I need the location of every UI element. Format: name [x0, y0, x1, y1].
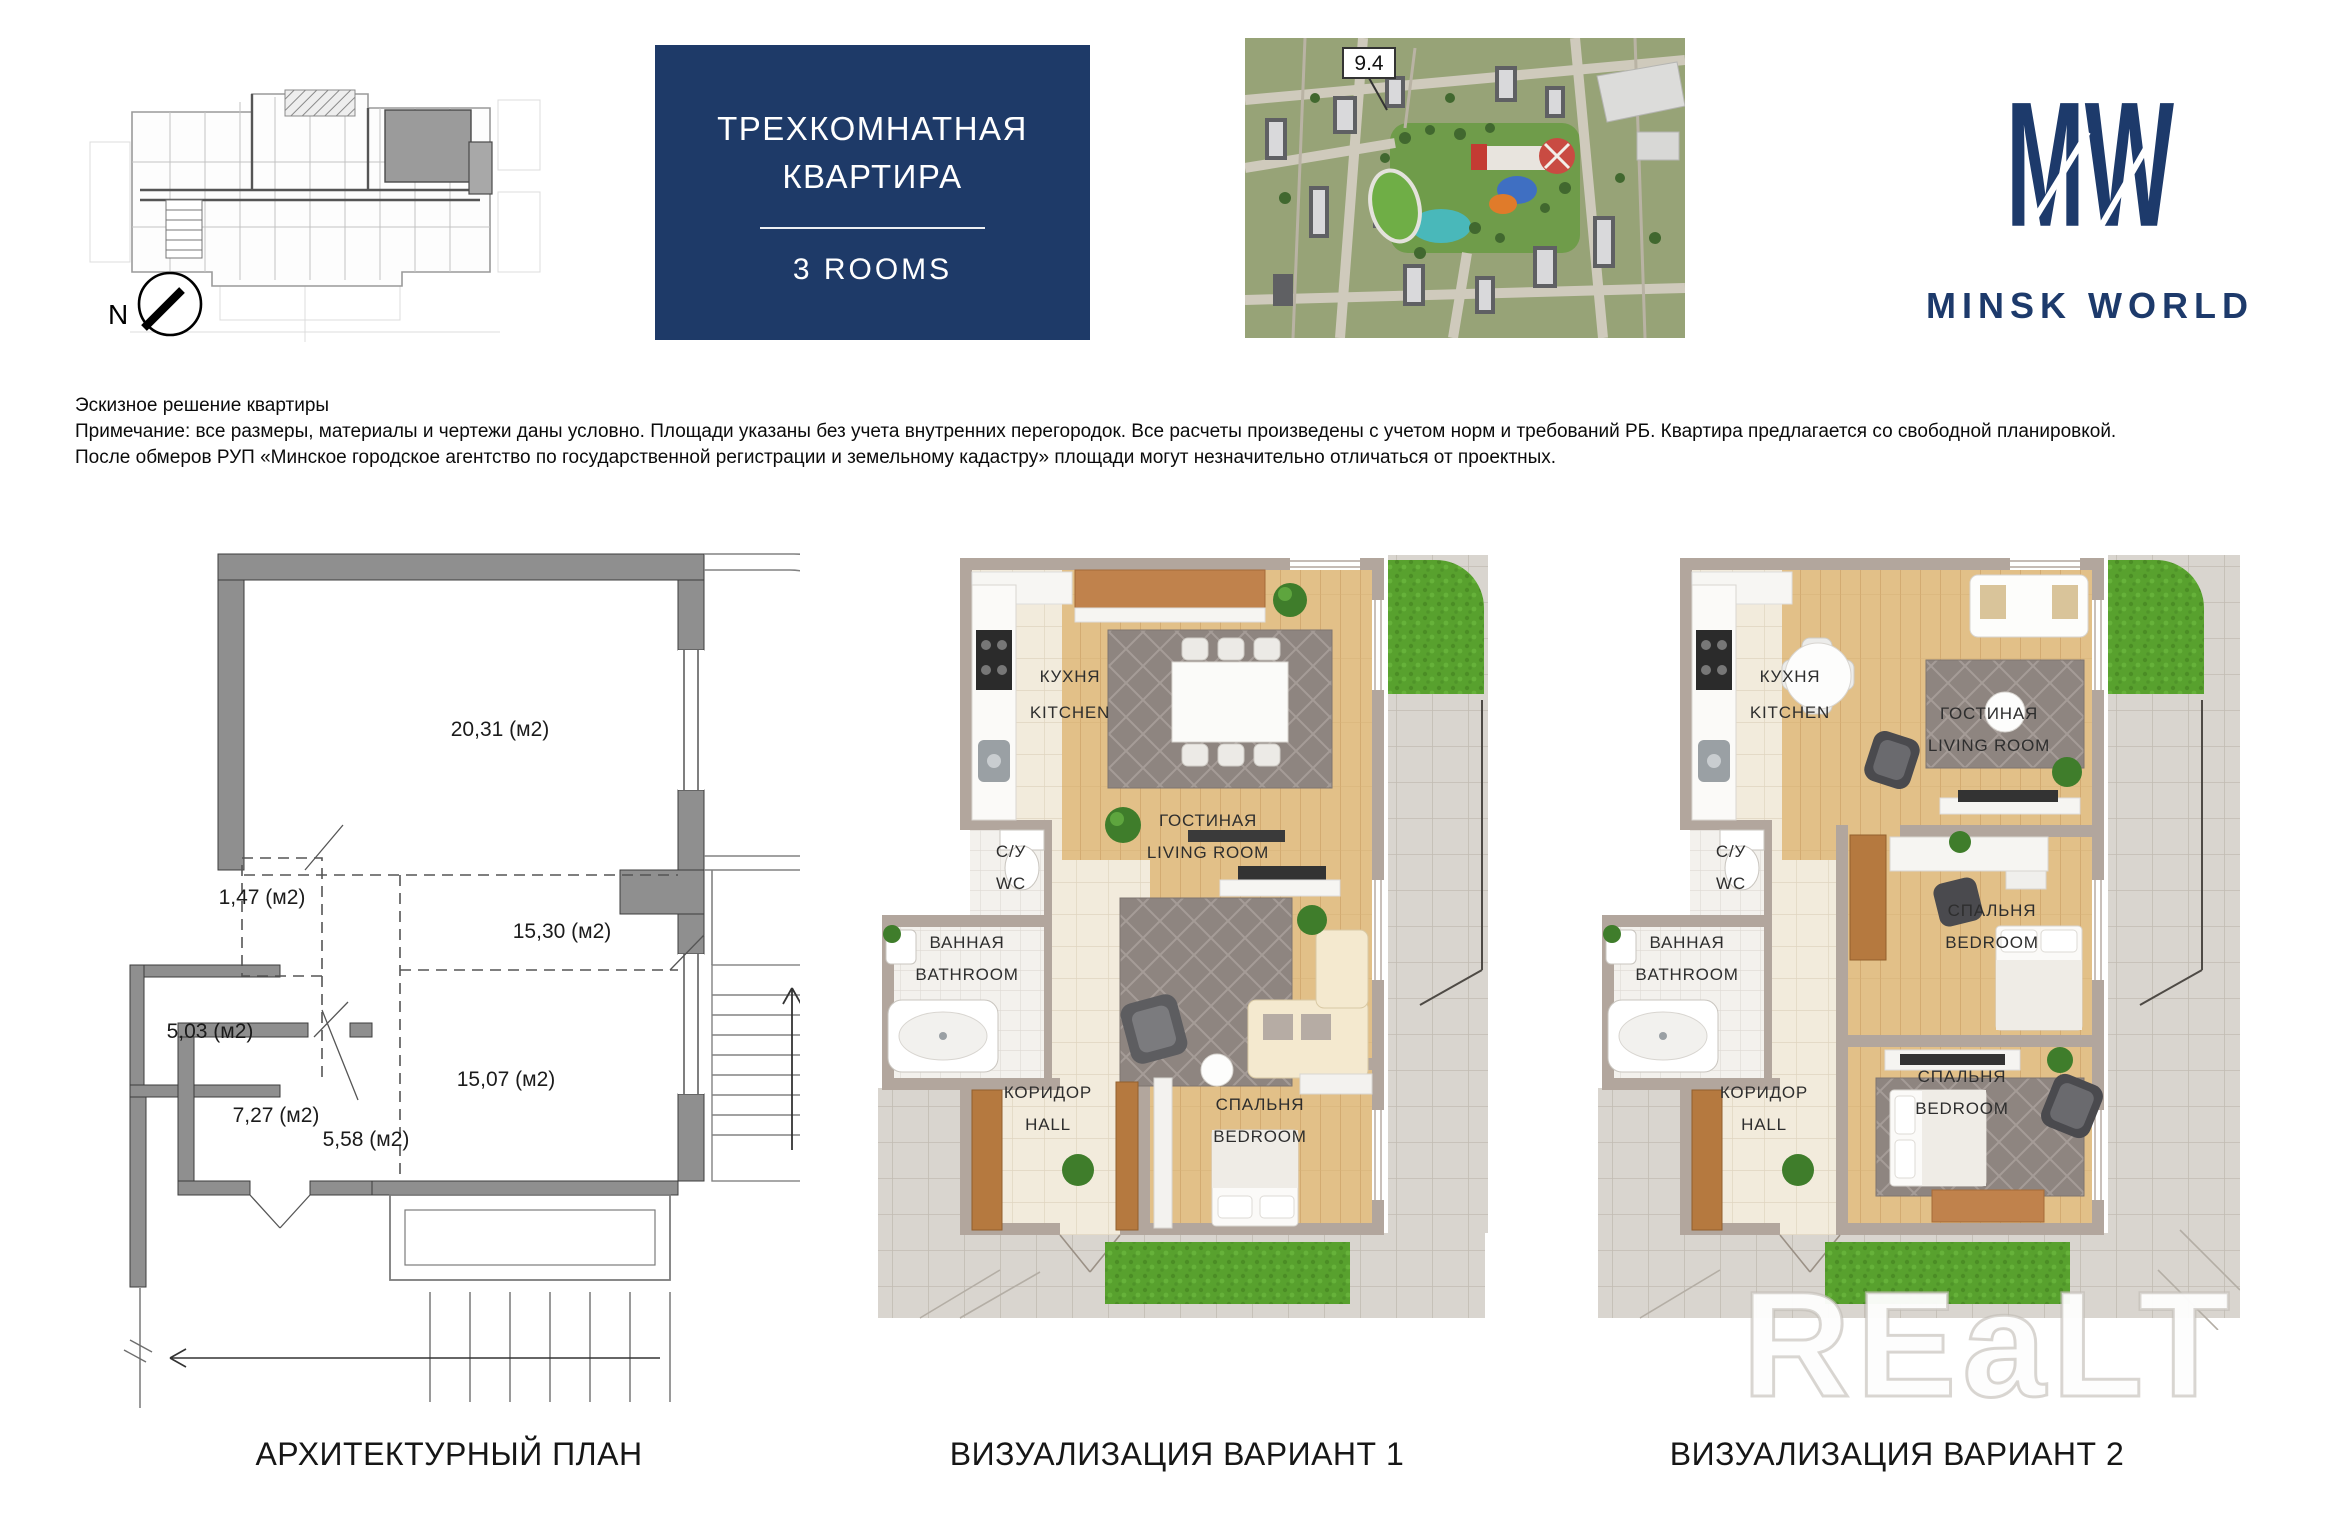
bedroom2-label-ru: СПАЛЬНЯ: [1918, 1067, 2007, 1086]
bathroom-label-en: BATHROOM: [1635, 965, 1738, 984]
area-closet: 1,47 (м2): [219, 886, 306, 909]
kitchen-counter: [1692, 585, 1736, 820]
bathroom-label-ru: ВАННАЯ: [1649, 933, 1724, 952]
site-plan-drawing: N: [70, 42, 560, 357]
bedroom1-wardrobe: [1850, 835, 1886, 960]
plant-icon: [1273, 583, 1307, 617]
area-room-bottom: 15,07 (м2): [457, 1068, 556, 1091]
hall-label-ru: КОРИДОР: [1720, 1083, 1808, 1102]
plant-icon: [1782, 1154, 1814, 1186]
grass-strip: [1105, 1242, 1350, 1304]
hall-label-en: HALL: [1025, 1115, 1071, 1134]
bathroom-label-en: BATHROOM: [915, 965, 1018, 984]
living-label-en: LIVING ROOM: [1147, 843, 1269, 862]
apartment-type-ru-line1: ТРЕХКОМНАТНАЯ: [717, 105, 1028, 153]
area-bathroom: 5,03 (м2): [167, 1020, 254, 1043]
balcony-outline: [704, 554, 800, 965]
bedroom-shelf: [1300, 1074, 1372, 1094]
visualization-variant-1: КУХНЯ KITCHEN С/У WC ВАННАЯ BATHROOM ГОС…: [820, 530, 1520, 1330]
building-outline: [132, 90, 492, 286]
stairwell: [712, 965, 800, 1181]
bedroom1-bedroom2-wall: [1848, 1035, 2104, 1047]
stove: [976, 630, 1012, 690]
hall-wardrobe: [1116, 1082, 1138, 1230]
caption-variant-1: ВИЗУАЛИЗАЦИЯ ВАРИАНТ 1: [950, 1436, 1405, 1473]
visualization-variant-2: КУХНЯ KITCHEN С/У WC ВАННАЯ BATHROOM ГОС…: [1540, 530, 2240, 1330]
living-label-ru: ГОСТИНАЯ: [1159, 811, 1257, 830]
area-corridor: 5,58 (м2): [323, 1128, 410, 1151]
living-sofa: [1970, 575, 2088, 637]
sideboard: [1075, 570, 1265, 608]
aerial-map-drawing: 9.4: [1245, 38, 1685, 338]
walls: [130, 554, 704, 1287]
bay-window: [390, 1195, 670, 1280]
monogram-text: MW: [2006, 70, 2174, 264]
disclaimer: Эскизное решение квартиры Примечание: вс…: [75, 393, 2285, 471]
site-plan: N: [70, 42, 560, 357]
caption-variant-2: ВИЗУАЛИЗАЦИЯ ВАРИАНТ 2: [1670, 1436, 2125, 1473]
tv-console: [1220, 880, 1340, 896]
disclaimer-line1: Эскизное решение квартиры: [75, 393, 2285, 419]
wc-label-ru: С/У: [996, 842, 1026, 861]
dining-set: [1172, 638, 1288, 766]
side-table: [1201, 1054, 1233, 1086]
grass-patch-right: [1388, 560, 1484, 694]
dashed-partitions: [242, 858, 678, 1181]
plant-icon: [1062, 1154, 1094, 1186]
mw-monogram-icon: MW: [2000, 70, 2180, 275]
area-room-mid: 15,30 (м2): [513, 920, 612, 943]
grass-patch-right: [2108, 560, 2204, 694]
brochure-page: N ТРЕХКОМНАТНАЯ КВАРТИРА 3 ROOMS: [0, 0, 2338, 1518]
bedroom1-label-en: BEDROOM: [1945, 933, 2038, 952]
kitchen-label-ru: КУХНЯ: [1760, 667, 1821, 686]
variant2-drawing: КУХНЯ KITCHEN С/У WC ВАННАЯ BATHROOM ГОС…: [1540, 530, 2240, 1330]
hall-label-ru: КОРИДОР: [1004, 1083, 1092, 1102]
bedroom-wardrobe: [1154, 1078, 1172, 1228]
caption-architectural-plan: АРХИТЕКТУРНЫЙ ПЛАН: [255, 1436, 642, 1473]
radiator: [1188, 830, 1285, 842]
compass: N: [108, 273, 201, 335]
bedroom1-label-ru: СПАЛЬНЯ: [1948, 901, 2037, 920]
apartment-type-ru-line2: КВАРТИРА: [782, 153, 962, 201]
hatched-roof: [285, 90, 355, 116]
plant-icon: [1297, 905, 1327, 935]
wc-label-en: WC: [1716, 874, 1746, 893]
exterior-stairs: [124, 1288, 670, 1408]
wc-label-ru: С/У: [1716, 842, 1746, 861]
tv: [1958, 790, 2058, 802]
bedroom-label-en: BEDROOM: [1213, 1127, 1306, 1146]
area-room-small: 7,27 (м2): [233, 1104, 320, 1127]
dresser: [1932, 1190, 2044, 1222]
architectural-plan: 20,31 (м2) 1,47 (м2) 15,30 (м2) 5,03 (м2…: [100, 540, 800, 1420]
bathroom-label-ru: ВАННАЯ: [929, 933, 1004, 952]
tv: [1900, 1054, 2005, 1065]
brand-name: MINSK WORLD: [1926, 285, 2254, 327]
kitchen-label-en: KITCHEN: [1030, 703, 1110, 722]
plant-icon: [2052, 757, 2082, 787]
bedroom-label-ru: СПАЛЬНЯ: [1216, 1095, 1305, 1114]
living-bedroom1-wall: [1900, 825, 2104, 837]
plant-icon: [2047, 1047, 2073, 1073]
apartment-type-en: 3 ROOMS: [793, 253, 952, 287]
stair-core: [166, 200, 202, 258]
hall-label-en: HALL: [1741, 1115, 1787, 1134]
compass-n-label: N: [108, 299, 128, 330]
apartment-type-card: ТРЕХКОМНАТНАЯ КВАРТИРА 3 ROOMS: [655, 45, 1090, 340]
variant1-drawing: КУХНЯ KITCHEN С/У WC ВАННАЯ BATHROOM ГОС…: [820, 530, 1520, 1330]
kitchen-label-en: KITCHEN: [1750, 703, 1830, 722]
stove: [1696, 630, 1732, 690]
plant-icon: [1105, 807, 1141, 843]
hall-wardrobe: [972, 1090, 1002, 1230]
area-room-top: 20,31 (м2): [451, 718, 550, 741]
living-label-ru: ГОСТИНАЯ: [1940, 704, 2038, 723]
badge-text: 9.4: [1354, 52, 1384, 75]
living-label-en: LIVING ROOM: [1928, 736, 2050, 755]
kitchen-label-ru: КУХНЯ: [1040, 667, 1101, 686]
bedroom2-label-en: BEDROOM: [1915, 1099, 2008, 1118]
wc-label-en: WC: [996, 874, 1026, 893]
disclaimer-line3: После обмеров РУП «Минское городское аге…: [75, 445, 2285, 471]
brand-logo: MW MINSK WORLD: [1940, 70, 2240, 335]
realt-watermark: REaLT: [1742, 1258, 2236, 1431]
hall-bedrooms-wall: [1836, 825, 1848, 1235]
hall-wardrobe: [1692, 1090, 1722, 1230]
architectural-plan-drawing: 20,31 (м2) 1,47 (м2) 15,30 (м2) 5,03 (м2…: [100, 540, 800, 1420]
disclaimer-line2: Примечание: все размеры, материалы и чер…: [75, 419, 2285, 445]
card-divider: [760, 227, 985, 229]
tv: [1238, 866, 1326, 880]
location-map: 9.4: [1245, 38, 1685, 338]
kitchen-counter: [972, 585, 1016, 820]
